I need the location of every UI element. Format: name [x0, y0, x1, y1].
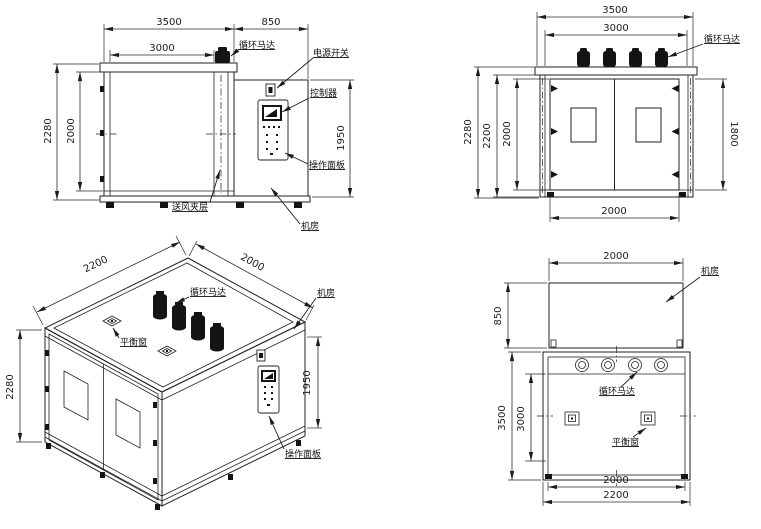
dim-text: 1800	[728, 121, 739, 146]
callout-text: 操作面板	[285, 448, 321, 460]
callout-text: 机房	[301, 220, 319, 232]
plan-dimensions: 2000 850 3500 3000 2000	[493, 251, 690, 506]
dim-text: 2000	[601, 206, 626, 217]
dim-text: 850	[493, 306, 504, 325]
callout-motor: 循环马达	[231, 39, 275, 56]
foot	[106, 202, 114, 208]
callout-text: 操作面板	[309, 159, 345, 171]
callout-control-panel: 操作面板	[269, 416, 321, 460]
balance-windows	[565, 412, 655, 425]
dim-text: 3500	[497, 405, 508, 430]
callout-text: 平衡窗	[120, 336, 147, 348]
dim-outer-height: 2280	[5, 330, 42, 442]
callout-balance-window: 平衡窗	[113, 328, 147, 348]
dim-text: 1950	[336, 125, 347, 150]
callout-text: 循环马达	[239, 39, 275, 51]
controller-panel	[258, 100, 288, 160]
dim-text: 2000	[603, 251, 628, 262]
machine-room-box	[549, 283, 683, 348]
right-door-window	[636, 108, 661, 142]
chamber-body	[540, 75, 693, 197]
iso-structure	[45, 258, 305, 510]
dim-text: 3500	[602, 5, 627, 16]
callout-text: 循环马达	[704, 33, 740, 45]
drawing-sheet: 3500 850 3000 2280 2000	[0, 0, 761, 529]
dim-text: 2000	[502, 121, 513, 146]
foot	[679, 192, 686, 197]
plan-structure	[537, 283, 696, 486]
callout-text: 控制器	[310, 87, 337, 99]
circulation-motor	[215, 47, 230, 63]
dim-inner-height: 2000	[502, 79, 549, 190]
door-hinge	[100, 176, 104, 182]
callout-power-switch: 电源开关	[277, 47, 349, 88]
circulation-motors	[153, 291, 224, 352]
base-edge	[162, 426, 305, 496]
balance-windows	[103, 316, 176, 356]
foot	[545, 474, 552, 479]
callout-machine-room: 机房	[271, 188, 319, 232]
dim-text: 2200	[482, 123, 493, 148]
door-hinge	[100, 86, 104, 92]
door-hinge	[100, 130, 104, 136]
callout-text: 循环马达	[190, 286, 226, 298]
dim-text: 3000	[516, 406, 527, 431]
dim-text: 2280	[5, 374, 16, 399]
controller-panel	[258, 366, 279, 413]
dim-text: 2280	[43, 118, 54, 143]
left-door	[550, 79, 615, 190]
left-door-window	[64, 371, 88, 420]
dim-text: 2000	[238, 252, 266, 274]
callout-text: 机房	[317, 287, 335, 299]
callout-text: 循环马达	[599, 385, 635, 397]
room-tab	[551, 340, 556, 347]
feet	[46, 440, 301, 510]
dim-text: 3500	[156, 17, 181, 28]
top-plenum-slab	[100, 63, 237, 72]
dim-inner-height: 2000	[66, 72, 103, 191]
callout-motor: 循环马达	[668, 33, 740, 57]
callout-motor: 循环马达	[599, 372, 637, 397]
callout-motor: 循环马达	[176, 286, 226, 303]
foot	[681, 474, 688, 479]
cad-drawing: 3500 850 3000 2280 2000	[0, 0, 761, 529]
side-view: 3500 850 3000 2280 2000	[43, 17, 354, 232]
motor	[210, 323, 224, 352]
right-door	[615, 79, 680, 190]
plan-callouts: 机房 循环马达 平衡窗	[599, 265, 719, 448]
left-door-window	[571, 108, 596, 142]
callout-control-panel: 操作面板	[285, 153, 345, 171]
front-callouts: 循环马达	[668, 33, 740, 57]
side-dimensions: 3500 850 3000 2280 2000	[43, 17, 354, 200]
dim-text: 3000	[603, 23, 628, 34]
foot	[294, 202, 302, 208]
callout-balance-window: 平衡窗	[612, 428, 646, 448]
foot	[160, 202, 168, 208]
dim-text: 3000	[149, 43, 174, 54]
dim-door-height: 1800	[695, 79, 739, 190]
dim-inner-width: 2000	[548, 475, 685, 491]
foot	[236, 202, 244, 208]
callout-text: 电源开关	[313, 47, 349, 59]
callout-air-plenum: 送风夹层	[172, 170, 220, 213]
callout-text: 送风夹层	[172, 201, 208, 213]
dim-inner-width: 3000	[110, 43, 214, 62]
room-tab	[677, 340, 682, 347]
dim-text: 2200	[603, 490, 628, 501]
dim-text: 2280	[463, 119, 474, 144]
right-door-window	[116, 399, 140, 448]
power-switch	[266, 84, 275, 96]
motor	[172, 302, 186, 331]
foot	[547, 192, 554, 197]
power-switch	[257, 350, 265, 361]
front-dimensions: 3500 3000 2280 2200 2000	[463, 5, 739, 222]
dim-text: 2000	[603, 475, 628, 486]
dim-text: 2200	[82, 254, 110, 275]
motor	[191, 312, 205, 341]
slab-edge	[162, 330, 305, 400]
circulation-motors	[577, 48, 668, 67]
callout-machine-room: 机房	[294, 287, 335, 329]
plan-view: 2000 850 3500 3000 2000	[493, 251, 719, 506]
side-structure	[96, 47, 310, 208]
callout-text: 机房	[701, 265, 719, 277]
base-edge	[162, 431, 305, 501]
motor	[153, 291, 167, 320]
dim-room-depth: 850	[493, 283, 547, 348]
dim-outer-height: 2280	[463, 67, 539, 198]
dim-text: 2000	[66, 118, 77, 143]
circulation-motors	[576, 359, 668, 372]
dim-room-width: 2000	[549, 251, 683, 281]
dim-width: 2000	[189, 241, 314, 320]
right-face	[162, 322, 305, 506]
iso-view: 2200 2000 2280 1950 循环马达	[5, 236, 335, 510]
dim-inner-depth: 3000	[516, 374, 546, 461]
front-view: 3500 3000 2280 2200 2000	[463, 5, 740, 222]
front-structure	[535, 48, 697, 197]
top-plenum-slab	[535, 67, 697, 75]
callout-text: 平衡窗	[612, 436, 639, 448]
dim-text: 1950	[302, 370, 313, 395]
dim-text: 850	[261, 17, 280, 28]
chamber-body	[104, 72, 234, 196]
callout-controller: 控制器	[282, 87, 337, 112]
